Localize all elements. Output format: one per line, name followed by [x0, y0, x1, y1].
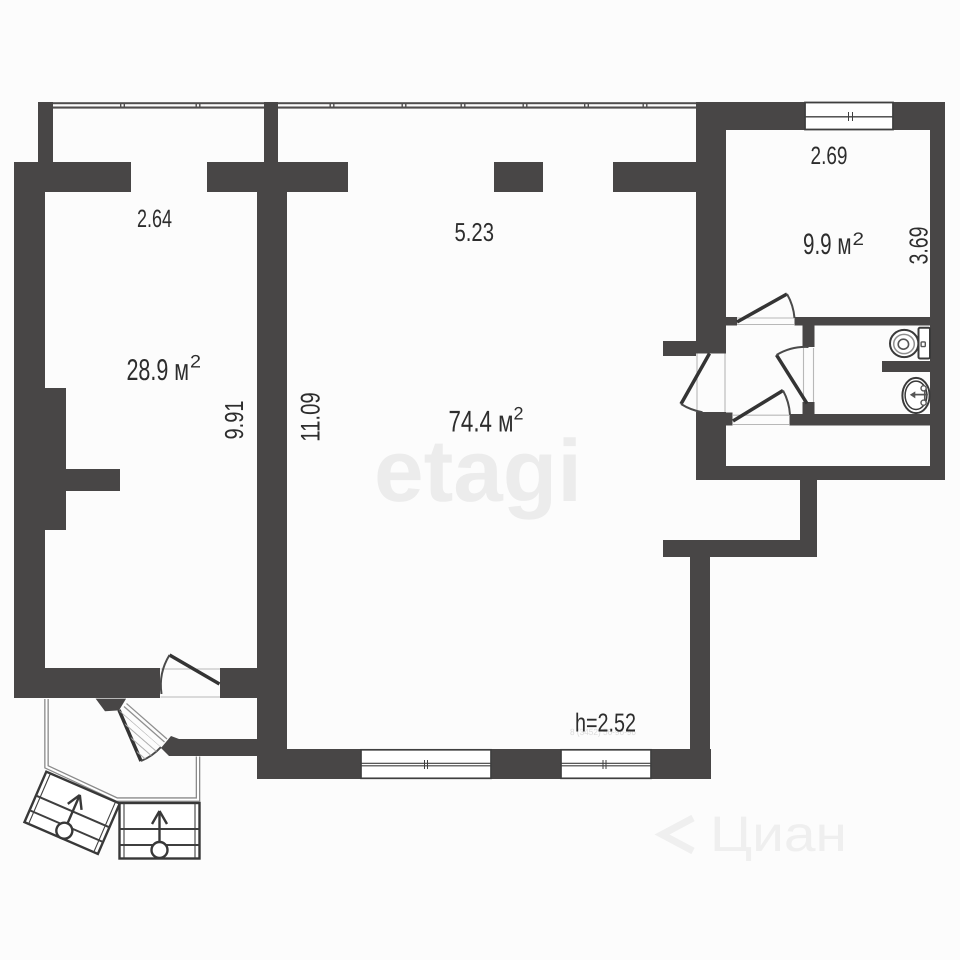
svg-text:2: 2 [190, 352, 201, 372]
svg-text:11.09: 11.09 [296, 392, 326, 442]
svg-text:74.4 м: 74.4 м [449, 406, 514, 439]
svg-text:Циан: Циан [710, 806, 847, 862]
svg-text:5.23: 5.23 [455, 217, 495, 247]
svg-text:2: 2 [853, 229, 865, 249]
svg-text:28.9 м: 28.9 м [127, 354, 190, 387]
svg-text:2.69: 2.69 [811, 142, 848, 170]
svg-text:h=2.52: h=2.52 [575, 708, 636, 738]
svg-text:9.91: 9.91 [219, 401, 249, 440]
svg-text:3.69: 3.69 [904, 227, 934, 265]
svg-text:2: 2 [514, 404, 524, 424]
svg-text:9.9 м: 9.9 м [803, 228, 852, 261]
svg-text:2.64: 2.64 [137, 205, 172, 233]
